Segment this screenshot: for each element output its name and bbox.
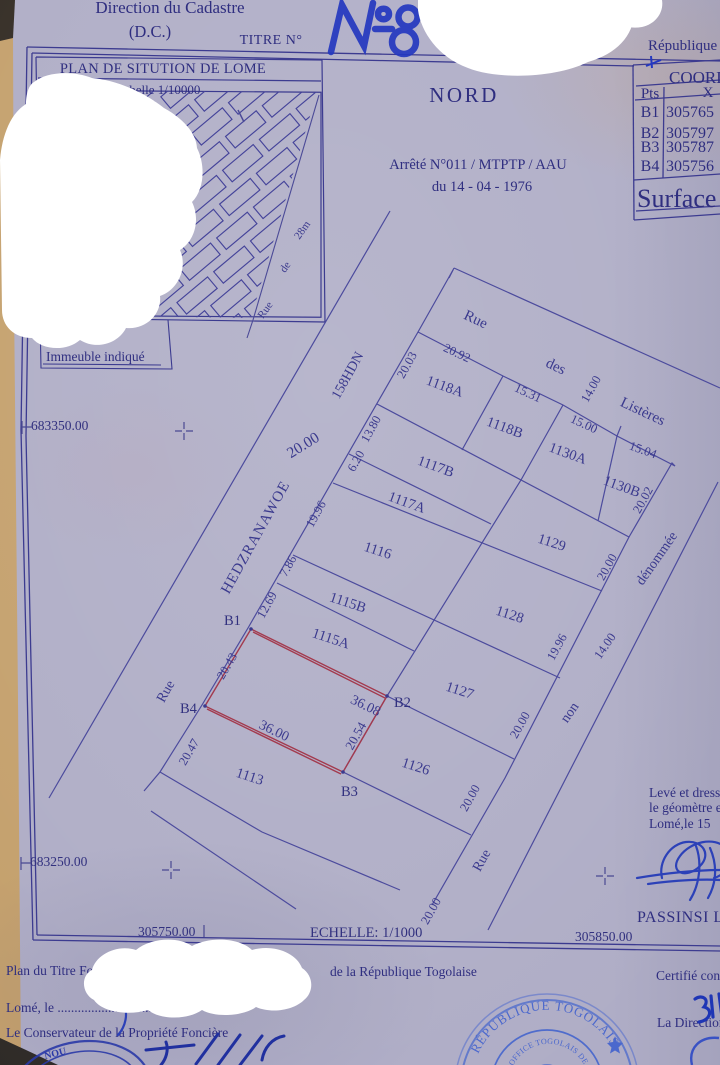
- svg-text:X: X: [703, 85, 714, 101]
- svg-text:305756: 305756: [666, 158, 714, 175]
- svg-text:TITRE N°: TITRE N°: [240, 33, 303, 48]
- svg-text:Lomé,le 15: Lomé,le 15: [649, 816, 711, 831]
- svg-text:(D.C.): (D.C.): [129, 22, 171, 41]
- svg-text:B4: B4: [180, 701, 198, 717]
- svg-text:B2: B2: [394, 695, 411, 711]
- svg-text:de la République Togolaise: de la République Togolaise: [330, 964, 477, 979]
- svg-text:Arrêté N°011 / MTPTP / AAU: Arrêté N°011 / MTPTP / AAU: [389, 157, 567, 173]
- svg-text:305765: 305765: [666, 104, 714, 121]
- svg-text:République: République: [648, 38, 717, 54]
- svg-text:B4: B4: [641, 158, 660, 175]
- svg-text:683250.00: 683250.00: [30, 854, 88, 869]
- svg-text:Immeuble indiqué: Immeuble indiqué: [46, 349, 145, 364]
- svg-text:ECHELLE: 1/1000: ECHELLE: 1/1000: [310, 925, 422, 941]
- svg-text:683350.00: 683350.00: [31, 418, 89, 433]
- svg-text:le géomètre expert agréé: le géomètre expert agréé: [649, 800, 720, 815]
- svg-text:Direction du Cadastre: Direction du Cadastre: [95, 0, 244, 17]
- svg-text:305850.00: 305850.00: [575, 929, 633, 944]
- svg-text:du 14 - 04 - 1976: du 14 - 04 - 1976: [432, 179, 532, 195]
- svg-text:B3: B3: [341, 784, 358, 800]
- svg-text:PASSINSI Lam: PASSINSI Lam: [637, 909, 720, 926]
- svg-text:305750.00: 305750.00: [138, 924, 196, 939]
- svg-text:B1: B1: [224, 613, 241, 629]
- svg-text:NORD: NORD: [429, 83, 499, 107]
- svg-text:La Direction: La Direction: [657, 1015, 720, 1030]
- svg-text:Levé et dressé par nous,: Levé et dressé par nous,: [649, 785, 720, 800]
- svg-text:Surface: Surface: [637, 184, 716, 213]
- svg-text:B1: B1: [641, 104, 660, 121]
- svg-text:Pts: Pts: [641, 86, 660, 102]
- svg-text:Certifié conf: Certifié conf: [656, 968, 720, 983]
- svg-text:PLAN DE SITUTION DE LOME: PLAN DE SITUTION DE LOME: [60, 61, 266, 77]
- svg-text:Le Conservateur de la Propriét: Le Conservateur de la Propriété Foncière: [6, 1025, 228, 1040]
- svg-text:305787: 305787: [666, 139, 714, 156]
- svg-text:B3: B3: [641, 139, 660, 156]
